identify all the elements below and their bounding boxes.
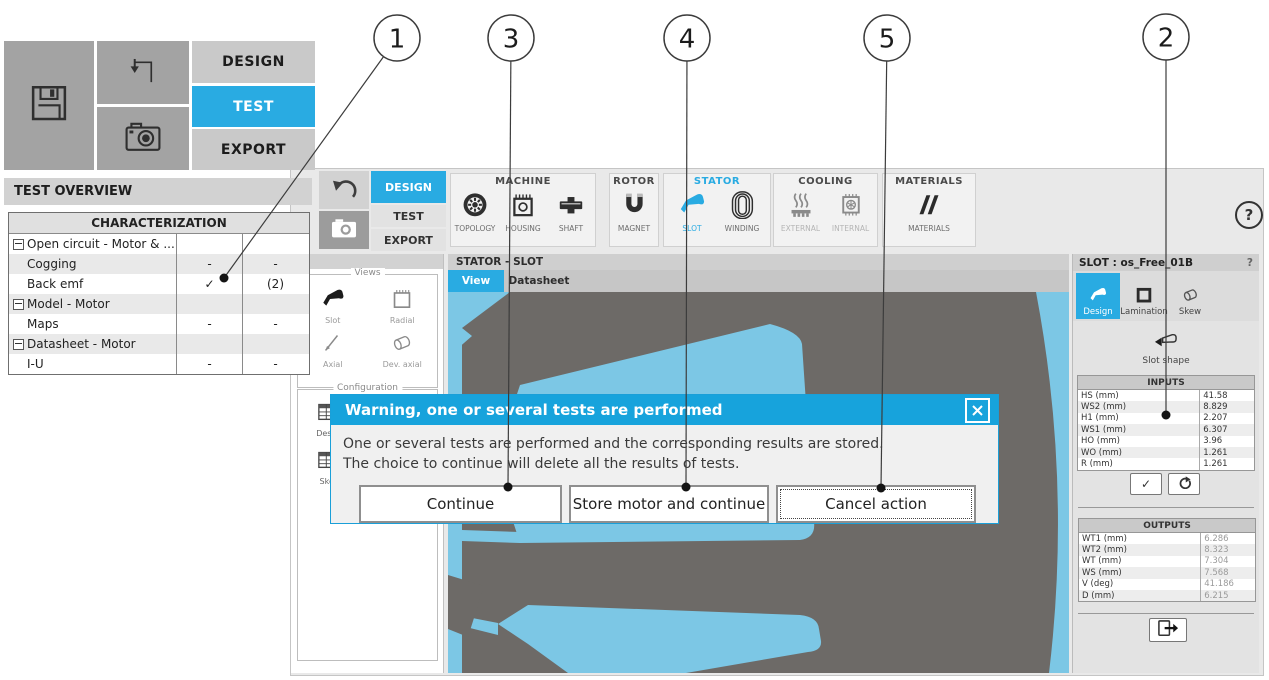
dialog-header: Warning, one or several tests are perfor…	[331, 395, 998, 425]
winding-icon	[727, 191, 757, 223]
callout-circle	[1143, 14, 1189, 60]
slot-panel-title: SLOT : os_Free_01B	[1079, 257, 1193, 269]
application: DESIGN TEST EXPORT MACHINETOPOLOGYHOUSIN…	[0, 0, 1269, 680]
dialog-title: Warning, one or several tests are perfor…	[345, 401, 723, 419]
ribbon-group-title: ROTOR	[610, 174, 658, 191]
callout-circle	[488, 15, 534, 61]
slot-shape-icon	[1154, 328, 1178, 353]
slot-properties-panel: SLOT : os_Free_01B ? DesignLaminationSke…	[1072, 254, 1259, 673]
slot-panel-tab-lamination[interactable]: Lamination	[1122, 273, 1166, 319]
ribbon-item-internal[interactable]: INTERNAL	[826, 191, 876, 233]
characterization-table: CHARACTERIZATION Open circuit - Motor & …	[8, 212, 310, 375]
configuration-groupbox-label: Configuration	[333, 383, 402, 393]
dialog-line-1: One or several tests are performed and t…	[343, 434, 986, 454]
output-row-ws-mm-: WS (mm)7.568	[1079, 567, 1255, 578]
help-button[interactable]: ?	[1235, 201, 1263, 229]
lamination-icon	[1134, 286, 1154, 307]
dialog-buttons: ContinueStore motor and continueCancel a…	[359, 485, 976, 523]
output-row-v-deg-: V (deg)41.186	[1079, 579, 1255, 590]
screenshot-button[interactable]	[319, 211, 369, 249]
input-value[interactable]: 1.261	[1199, 447, 1254, 458]
characterization-header: CHARACTERIZATION	[9, 213, 309, 234]
shaft-icon	[556, 191, 586, 223]
reset-button[interactable]	[1168, 473, 1200, 495]
tab-export[interactable]: EXPORT	[371, 229, 446, 251]
view-item-radial[interactable]: Radial	[368, 287, 438, 325]
slot-panel-tabs: DesignLaminationSkew	[1073, 271, 1259, 321]
input-value[interactable]: 6.307	[1199, 424, 1254, 435]
dialog-line-2: The choice to continue will delete all t…	[343, 454, 986, 474]
axial-icon	[320, 340, 346, 359]
ribbon-group-title: COOLING	[774, 174, 877, 191]
skew-icon	[1180, 286, 1200, 307]
materials-icon	[914, 191, 944, 223]
ribbon-group-title: MACHINE	[451, 174, 595, 191]
callout-number: 1	[389, 24, 406, 54]
outputs-table: OUTPUTS WT1 (mm)6.286WT2 (mm)8.323WT (mm…	[1078, 518, 1256, 602]
ribbon-group-materials: MATERIALSMATERIALS	[882, 173, 976, 247]
export-icon	[1157, 618, 1179, 641]
internal-cooling-icon	[836, 191, 866, 223]
characterization-row-cogging[interactable]: Cogging--	[9, 254, 309, 274]
dialog-button-store-motor-and-continue[interactable]: Store motor and continue	[569, 485, 769, 523]
dev-axial-icon	[389, 340, 415, 359]
test-overview-panel: DESIGN TEST EXPORT TEST OVERVIEW CHARACT…	[4, 41, 315, 373]
tab-design[interactable]: DESIGN	[371, 171, 446, 203]
slot-panel-help[interactable]: ?	[1247, 257, 1253, 269]
output-value: 7.304	[1200, 556, 1255, 567]
reset-icon	[1177, 476, 1191, 492]
callout-circle	[664, 15, 710, 61]
slot-dark-icon	[320, 296, 346, 315]
input-row-ws2-mm-[interactable]: WS2 (mm)8.829	[1078, 401, 1254, 412]
characterization-row-open-circuit-motor-[interactable]: Open circuit - Motor & ...	[9, 234, 309, 254]
output-value: 41.186	[1200, 579, 1255, 590]
slot-shape-label: Slot shape	[1142, 356, 1189, 366]
slot-panel-tab-design[interactable]: Design	[1076, 273, 1120, 319]
ribbon-group-cooling: COOLINGEXTERNALINTERNAL	[773, 173, 878, 247]
callout-circle	[864, 15, 910, 61]
callout-circle	[374, 15, 420, 61]
ribbon-group-rotor: ROTORMAGNET	[609, 173, 659, 247]
apply-button[interactable]: ✓	[1130, 473, 1162, 495]
input-row-wo-mm-[interactable]: WO (mm)1.261	[1078, 447, 1254, 458]
output-row-wt1-mm-: WT1 (mm)6.286	[1079, 533, 1255, 544]
ribbon-item-housing[interactable]: HOUSING	[499, 191, 547, 233]
input-value[interactable]: 8.829	[1199, 401, 1254, 412]
output-value: 7.568	[1200, 567, 1255, 578]
save-button[interactable]	[4, 41, 94, 170]
close-button[interactable]	[965, 398, 990, 423]
check-icon: ✓	[1141, 477, 1151, 491]
output-value: 6.286	[1200, 533, 1255, 544]
camera-icon	[122, 117, 164, 160]
callout-number: 3	[503, 24, 520, 54]
magnet-icon	[619, 191, 649, 223]
inputs-header: INPUTS	[1078, 376, 1254, 390]
ribbon-item-winding[interactable]: WINDING	[717, 191, 767, 233]
tab-test[interactable]: TEST	[371, 205, 446, 227]
view-item-dev-axial[interactable]: Dev. axial	[368, 331, 438, 369]
input-value[interactable]: 2.207	[1199, 413, 1254, 424]
output-value: 6.215	[1200, 590, 1255, 601]
ribbon-item-slot[interactable]: SLOT	[667, 191, 717, 233]
ribbon-group-machine: MACHINETOPOLOGYHOUSINGSHAFT	[450, 173, 596, 247]
overlay-tab-design[interactable]: DESIGN	[192, 41, 315, 83]
dialog-body: One or several tests are performed and t…	[331, 425, 998, 474]
slot-white-icon	[1088, 286, 1108, 307]
callout-number: 5	[879, 24, 896, 54]
output-row-wt-mm-: WT (mm)7.304	[1079, 556, 1255, 567]
warning-dialog: Warning, one or several tests are perfor…	[330, 394, 999, 524]
viewer-title: STATOR - SLOT	[456, 256, 543, 268]
input-row-hs-mm-[interactable]: HS (mm)41.58	[1078, 390, 1254, 401]
slot-shape-tool[interactable]: Slot shape	[1073, 321, 1259, 373]
ribbon-group-stator: STATORSLOTWINDING	[663, 173, 771, 247]
undo-icon	[329, 174, 359, 206]
panel-divider-2	[1078, 613, 1254, 614]
input-row-r-mm-[interactable]: R (mm)1.261	[1078, 458, 1254, 469]
ribbon-item-magnet[interactable]: MAGNET	[610, 191, 658, 233]
collapse-icon[interactable]	[13, 339, 24, 350]
panel-divider	[1078, 507, 1254, 508]
input-value[interactable]: 1.261	[1199, 458, 1254, 469]
characterization-row-back-emf[interactable]: Back emf✓(2)	[9, 274, 309, 294]
input-row-h1-mm-[interactable]: H1 (mm)2.207	[1078, 413, 1254, 424]
tab-datasheet[interactable]: Datasheet	[504, 270, 574, 292]
characterization-row-model-motor[interactable]: Model - Motor	[9, 294, 309, 314]
camera-icon	[330, 215, 358, 245]
export-slot-button[interactable]	[1149, 618, 1187, 642]
dialog-button-continue[interactable]: Continue	[359, 485, 562, 523]
overlay-tab-test[interactable]: TEST	[192, 86, 315, 127]
ribbon-group-title: STATOR	[664, 174, 770, 191]
views-groupbox: Views SlotRadialAxialDev. axial	[297, 274, 438, 388]
ribbon-item-topology[interactable]: TOPOLOGY	[451, 191, 499, 233]
input-row-ho-mm-[interactable]: HO (mm)3.96	[1078, 436, 1254, 447]
overlay-tab-export[interactable]: EXPORT	[192, 129, 315, 170]
callout-number: 4	[679, 24, 696, 54]
topology-icon	[460, 191, 490, 223]
collapse-icon[interactable]	[13, 299, 24, 310]
ribbon-item-materials[interactable]: MATERIALS	[904, 191, 954, 233]
input-row-ws1-mm-[interactable]: WS1 (mm)6.307	[1078, 424, 1254, 435]
test-overview-title: TEST OVERVIEW	[4, 178, 312, 205]
back-button[interactable]	[319, 171, 369, 209]
viewer-title-bar: STATOR - SLOT	[448, 254, 1069, 270]
characterization-row-i-u[interactable]: I-U--	[9, 354, 309, 374]
slot-blue-icon	[677, 191, 707, 223]
screenshot-button-overlay[interactable]	[97, 107, 189, 170]
ribbon-group-title: MATERIALS	[883, 174, 975, 191]
slot-panel-header: SLOT : os_Free_01B ?	[1073, 254, 1259, 271]
housing-icon	[508, 191, 538, 223]
callout-number: 2	[1158, 23, 1175, 53]
viewer-tabs: View Datasheet	[448, 270, 1069, 292]
ribbon-item-shaft[interactable]: SHAFT	[547, 191, 595, 233]
radial-icon	[389, 296, 415, 315]
collapse-icon[interactable]	[13, 239, 24, 250]
external-cooling-icon	[786, 191, 816, 223]
save-icon	[26, 82, 72, 128]
views-groupbox-label: Views	[350, 268, 384, 278]
input-value[interactable]: 41.58	[1199, 390, 1254, 401]
outputs-header: OUTPUTS	[1079, 519, 1255, 533]
dialog-button-cancel-action[interactable]: Cancel action	[776, 485, 976, 523]
output-row-wt2-mm-: WT2 (mm)8.323	[1079, 544, 1255, 555]
slot-panel-tab-skew[interactable]: Skew	[1168, 273, 1212, 319]
characterization-row-maps[interactable]: Maps--	[9, 314, 309, 334]
inputs-table: INPUTS HS (mm)41.58WS2 (mm)8.829H1 (mm)2…	[1077, 375, 1255, 471]
input-value[interactable]: 3.96	[1199, 436, 1254, 447]
characterization-row-datasheet-motor[interactable]: Datasheet - Motor	[9, 334, 309, 354]
import-button[interactable]	[97, 41, 189, 104]
tab-view[interactable]: View	[448, 270, 504, 292]
import-arrow-icon	[125, 54, 161, 91]
output-row-d-mm-: D (mm)6.215	[1079, 590, 1255, 601]
output-value: 8.323	[1200, 544, 1255, 555]
close-icon	[972, 405, 983, 416]
ribbon-item-external[interactable]: EXTERNAL	[776, 191, 826, 233]
